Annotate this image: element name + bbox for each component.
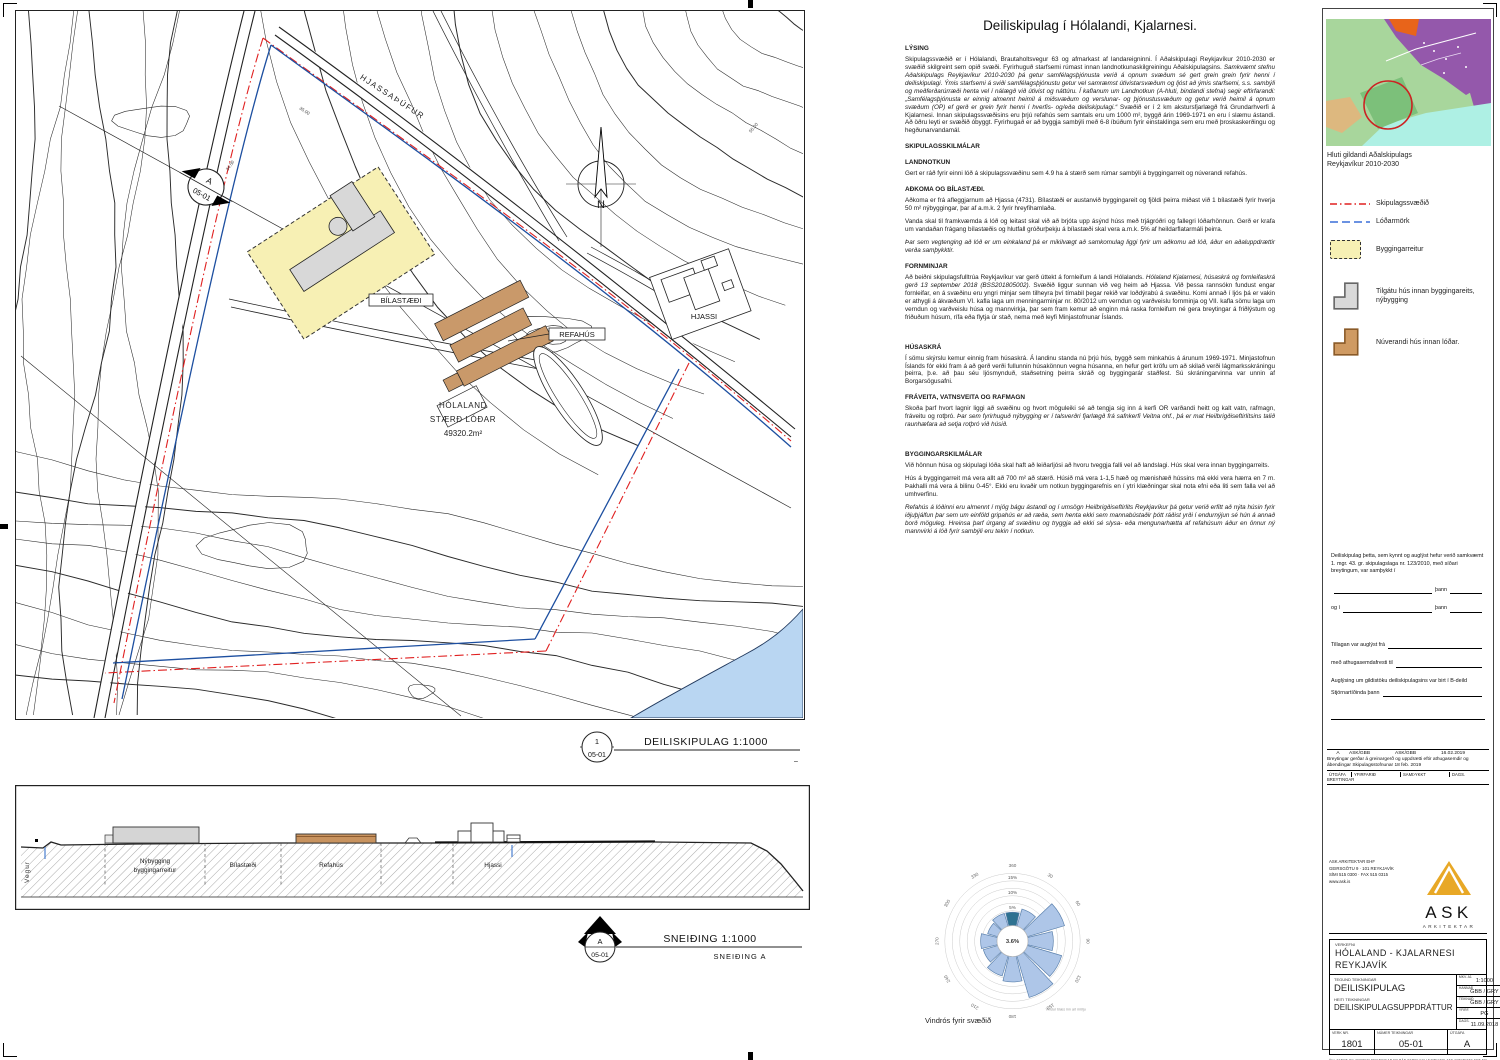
direction-label: 360 [1009, 863, 1017, 868]
paragraph: Gert er ráð fyrir einni lóð á skipulagss… [905, 170, 1275, 178]
edge-tick [748, 1052, 753, 1060]
svg-text:–: – [794, 758, 798, 765]
section-refahus [296, 834, 376, 843]
direction-label: 210 [970, 1002, 980, 1010]
direction-label: 60 [1074, 900, 1081, 907]
section-heading: BYGGINGARSKILMÁLAR [905, 451, 1275, 459]
gray-house-icon [1330, 281, 1376, 311]
section-heading: FORNMINJAR [905, 263, 1275, 271]
elevation-label: 34.50 [225, 159, 236, 171]
survey-line [21, 356, 461, 716]
svg-text:49320.2m²: 49320.2m² [444, 429, 483, 438]
drawing-type: DEILISKIPULAG [1334, 983, 1452, 994]
signature-row: og í þann [1331, 605, 1485, 613]
revision-description: Breytingar gerðar á greinargerð og uppdr… [1327, 757, 1489, 769]
building-envelope-icon [1330, 240, 1376, 259]
signature-row: Tillagan var auglýst frá [1331, 642, 1485, 650]
section-drawing: Vegur [15, 785, 810, 910]
holaland-label: HÓLALAND [439, 401, 487, 410]
section-heading: AÐKOMA OG BÍLASTÆÐI. [905, 186, 1275, 194]
signature-line [1343, 606, 1432, 613]
page-title: Deiliskipulag í Hólalandi, Kjalarnesi. [905, 18, 1275, 33]
direction-label: 120 [1074, 974, 1082, 984]
signature-row: Stjórnartíðinda þann [1331, 690, 1485, 698]
drawing-title: DEILISKIPULAGSUPPDRÁTTUR [1334, 1003, 1452, 1012]
revision-field: ÚTGÁFA A [1447, 1030, 1486, 1054]
paragraph: Í sömu skýrslu kemur einnig fram húsaskr… [905, 355, 1275, 387]
ring-label: 15% [1008, 875, 1017, 880]
date-line [1388, 642, 1482, 649]
paragraph: Við hönnun húsa og skipulagi lóða skal h… [905, 462, 1275, 470]
legend-panel: Hluti gildandi Aðalskipulags Reykjavíkur… [1322, 8, 1494, 1050]
red-dashdot-line-icon [1330, 200, 1376, 208]
direction-label: 240 [943, 974, 951, 984]
direction-label: 330 [970, 871, 980, 879]
drawing-number-field: NÚMER TEIKNINGAR 05-01 [1374, 1030, 1447, 1054]
paragraph: Þar sem vegtenging að lóð er um einkalan… [905, 239, 1275, 255]
track-from-top [433, 11, 567, 241]
edge-tick [0, 524, 8, 529]
signature-row: þann [1331, 587, 1485, 595]
building-envelope [246, 165, 435, 339]
sea-water [631, 609, 803, 718]
legend-item: Lóðarmörk [1330, 217, 1489, 226]
plan-scale-bar: 1 05-01 DEILISKIPULAG 1:1000 – [568, 725, 808, 771]
section-heading: HÚSASKRÁ [905, 344, 1275, 352]
mound-outline [523, 339, 613, 454]
paragraph: Skipulagssvæðið er í Hólalandi, Brautaho… [905, 56, 1275, 135]
inset-caption: Hluti gildandi Aðalskipulags Reykjavíkur… [1327, 151, 1412, 170]
paragraph: Refahús á lóðinni eru almennt í mjög bág… [905, 504, 1275, 536]
ask-logo-icon [1425, 859, 1473, 897]
drawing-sheet: HJASSAÞÚFUR BÍLASTÆÐI REFAHÚS HJASSI HÓL… [0, 0, 1500, 1060]
svg-text:Nýbygging: Nýbygging [140, 858, 171, 865]
masterplan-inset [1326, 19, 1491, 146]
direction-label: 270 [935, 937, 940, 945]
legend-item: Tilgátu hús innan byggingareits, nýbyggi… [1330, 281, 1489, 311]
section-heading: LÝSING [905, 45, 1275, 53]
revision-table: A ASK/GBB ASK/GBB 16.02.2019 Breytingar … [1327, 749, 1489, 785]
paragraph: Skoða þarf hvort lagnir liggi að svæðinu… [905, 405, 1275, 429]
svg-text:A: A [597, 937, 602, 946]
approval-block: Deiliskipulag þetta, sem kynnt og auglýs… [1331, 553, 1485, 697]
date-line [1383, 690, 1482, 697]
legend-item: Núverandi hús innan lóðar. [1330, 327, 1489, 357]
north-arrow: N [566, 127, 636, 247]
hjassi-label: HJASSI [691, 312, 717, 321]
date-line [1396, 661, 1482, 668]
svg-text:05-01: 05-01 [591, 952, 609, 959]
ring-label: 10% [1008, 890, 1017, 895]
site-plan-map: HJASSAÞÚFUR BÍLASTÆÐI REFAHÚS HJASSI HÓL… [15, 10, 805, 720]
legend-item: Skipulagssvæðið [1330, 199, 1489, 208]
svg-text:Bílastæði: Bílastæði [230, 861, 257, 869]
direction-label: 180 [1008, 1014, 1016, 1019]
section-new-building [113, 827, 199, 843]
signature-line [1334, 587, 1432, 594]
section-scale-sub: SNEIÐING A [714, 952, 767, 961]
direction-label: 90 [1085, 939, 1090, 945]
section-scale-bar: A 05-01 SNEIÐING 1:1000 SNEIÐING A [558, 912, 810, 972]
report-column: Deiliskipulag í Hólalandi, Kjalarnesi. L… [905, 0, 1275, 541]
rose-note: Vindur blæs inn að miðju [1046, 1007, 1086, 1012]
svg-text:Refahús: Refahús [319, 862, 343, 869]
trim-mark [3, 1043, 17, 1057]
divider-rule [1331, 719, 1485, 720]
wind-rose-chart: 5%10%15%30609012015018021024027030033036… [920, 856, 1105, 1032]
signature-row: með athugasemdafresti til [1331, 660, 1485, 668]
report-sections: LÝSINGSkipulagssvæðið er í Hólalandi, Br… [905, 45, 1275, 536]
calm-percentage: 3.6% [1006, 939, 1019, 945]
drawing-meta-fields: MKV. A11:1000 HANNAÐGBB / GRY TEIKNAÐGBB… [1456, 975, 1500, 1029]
date-line [1450, 606, 1482, 613]
edge-tick [748, 0, 753, 8]
title-block: ASK ARKITEKTAR EHF GEIRSGÖTU 9 · 101 REY… [1329, 859, 1487, 1060]
ring-label: 5% [1009, 905, 1016, 910]
section-svg: Vegur [15, 785, 810, 910]
paragraph: Aðkoma er frá afleggjarnum að Hjassa (47… [905, 197, 1275, 213]
section-heading: FRÁVEITA, VATNSVEITA OG RAFMAGN [905, 394, 1275, 402]
project-number-field: VERK NR. 1801 [1330, 1030, 1374, 1054]
paragraph: Að beiðni skipulagsfulltrúa Reykjavíkur … [905, 274, 1275, 322]
paragraph: Hús á byggingarreit má vera allt að 700 … [905, 475, 1275, 499]
planning-boundary [105, 38, 791, 703]
direction-label: 30 [1047, 872, 1054, 879]
vegur-label: Vegur [24, 861, 31, 883]
svg-text:STÆRÐ LÓÐAR: STÆRÐ LÓÐAR [430, 415, 496, 424]
project-name: HÓLALAND - KJALARNESI [1335, 948, 1481, 959]
svg-text:05-01: 05-01 [588, 752, 606, 759]
blue-dashed-line-icon [1330, 218, 1376, 226]
site-plan-svg: HJASSAÞÚFUR BÍLASTÆÐI REFAHÚS HJASSI HÓL… [16, 11, 803, 718]
approval-intro: Deiliskipulag þetta, sem kynnt og auglýs… [1331, 553, 1485, 576]
wind-rose-caption: Vindrós fyrir svæðið [925, 1016, 991, 1025]
bilastaedi-label: BÍLASTÆÐI [381, 296, 422, 305]
ask-logo: ASK ARKITEKTAR [1411, 859, 1487, 929]
orange-house-icon [1330, 327, 1376, 357]
elevation-label: 35.00 [298, 106, 311, 117]
west-road [94, 11, 255, 718]
paragraph: Vanda skal til framkvæmda á lóð og leita… [905, 218, 1275, 234]
legend-item: Byggingarreitur [1330, 240, 1489, 259]
firm-info: ASK ARKITEKTAR EHF GEIRSGÖTU 9 · 101 REY… [1329, 859, 1394, 929]
svg-text:Hjassi: Hjassi [484, 862, 501, 869]
svg-text:byggingarreitur: byggingarreitur [134, 867, 178, 874]
section-hjassi-buildings [458, 823, 520, 842]
date-line [1450, 587, 1482, 594]
direction-label: 300 [943, 898, 951, 908]
section-heading: SKIPULAGSSKILMÁLAR [905, 143, 1275, 151]
plan-scale-label: DEILISKIPULAG 1:1000 [644, 736, 768, 748]
svg-text:1: 1 [595, 737, 599, 746]
section-scale-label: SNEIÐING 1:1000 [663, 933, 756, 945]
section-heading: LANDNOTKUN [905, 159, 1275, 167]
project-field: VERKEFNI HÓLALAND - KJALARNESI REYKJAVÍK [1330, 940, 1486, 974]
revision-row: A ASK/GBB ASK/GBB 16.02.2019 [1327, 751, 1489, 756]
contour-lines [16, 11, 803, 718]
north-label: N [597, 199, 605, 211]
elevation-label: 55.00 [748, 121, 759, 133]
refahus-label: REFAHÚS [559, 330, 594, 339]
legend: Skipulagssvæðið Lóðarmörk Byggingarreitu… [1330, 199, 1489, 366]
